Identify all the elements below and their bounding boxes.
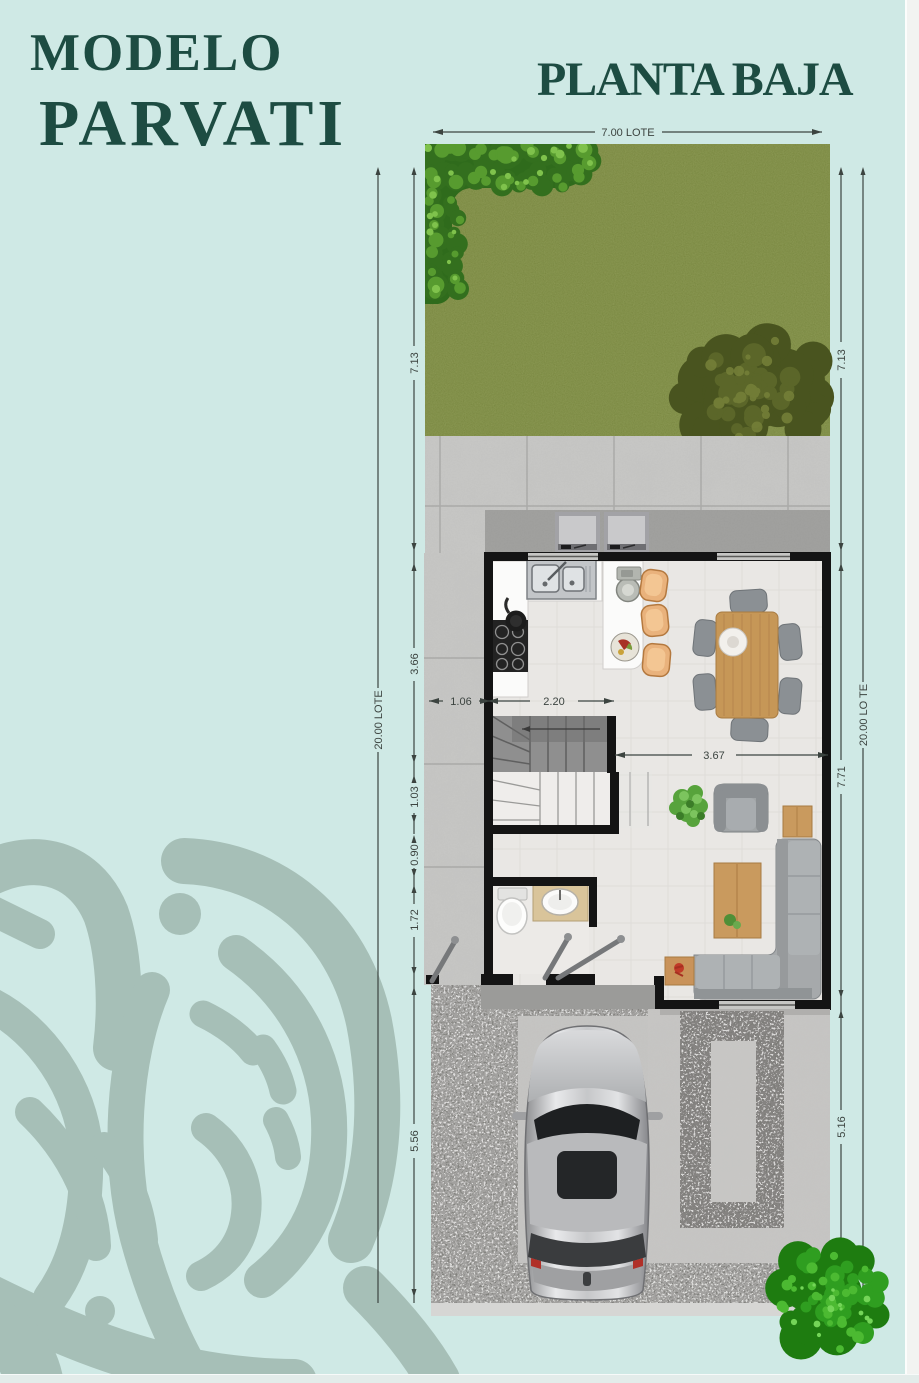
svg-text:5.16: 5.16 <box>836 1116 848 1137</box>
svg-text:7.71: 7.71 <box>836 766 848 787</box>
svg-text:5.56: 5.56 <box>409 1130 421 1151</box>
svg-text:20.00 LOTE: 20.00 LOTE <box>373 690 385 749</box>
svg-text:1.06: 1.06 <box>450 696 471 708</box>
svg-text:3.67: 3.67 <box>703 750 724 762</box>
svg-text:7.13: 7.13 <box>409 352 421 373</box>
svg-text:2.20: 2.20 <box>543 696 564 708</box>
svg-text:3.66: 3.66 <box>409 653 421 674</box>
svg-text:0.90: 0.90 <box>409 844 421 865</box>
svg-text:1.03: 1.03 <box>409 786 421 807</box>
svg-text:1.72: 1.72 <box>409 909 421 930</box>
svg-text:7.00 LOTE: 7.00 LOTE <box>601 127 654 139</box>
svg-text:7.13: 7.13 <box>836 349 848 370</box>
svg-text:20.00 LO TE: 20.00 LO TE <box>858 684 870 746</box>
